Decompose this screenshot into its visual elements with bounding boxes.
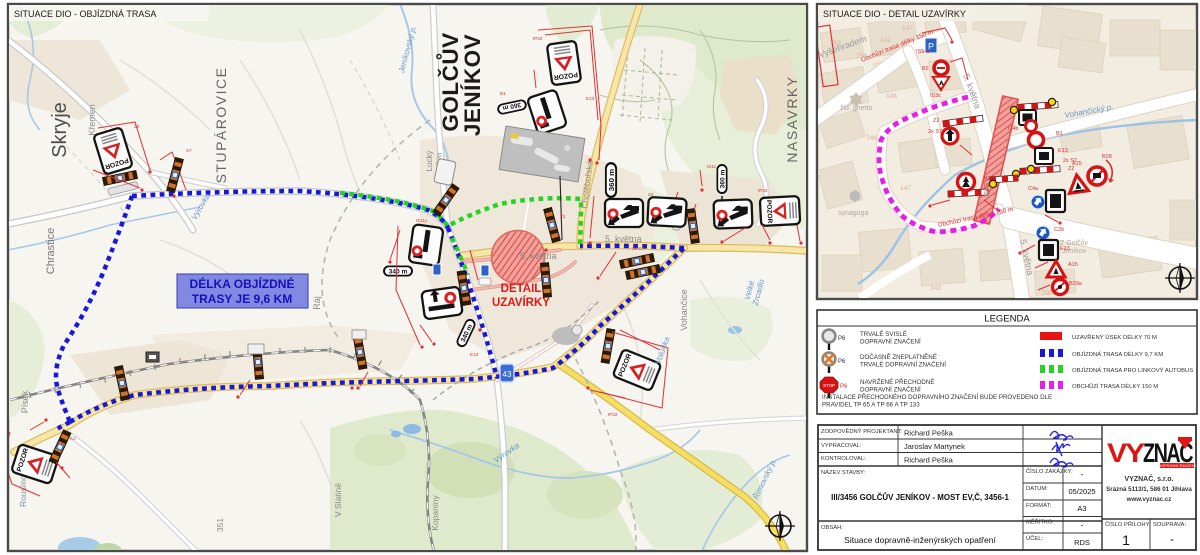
svg-text:UZAVÍRKY: UZAVÍRKY — [492, 296, 550, 309]
svg-text:UZAVŘENÝ ÚSEK DÉLKY 70 M: UZAVŘENÝ ÚSEK DÉLKY 70 M — [1072, 333, 1157, 341]
svg-text:ČÍSLO ZAKÁZKY:: ČÍSLO ZAKÁZKY: — [1026, 468, 1073, 475]
svg-text:Richard Peška: Richard Peška — [904, 456, 954, 465]
svg-text:5. května: 5. května — [605, 234, 642, 244]
svg-text:GOLČŮV: GOLČŮV — [435, 32, 463, 131]
svg-text:Z2: Z2 — [134, 124, 140, 129]
svg-text:TRASY JE 9,6 KM: TRASY JE 9,6 KM — [192, 292, 292, 306]
svg-text:B1: B1 — [1056, 131, 1063, 137]
svg-text:IS5-d: IS5-d — [916, 49, 929, 55]
svg-text:Vohančice: Vohančice — [679, 289, 689, 331]
svg-text:C4a: C4a — [1028, 186, 1039, 192]
svg-text:STUPÁROVICE: STUPÁROVICE — [213, 67, 229, 184]
svg-text:MĚŘÍTKO:: MĚŘÍTKO: — [1026, 518, 1054, 526]
svg-text:2x S7: 2x S7 — [928, 129, 942, 135]
svg-text:KONTROLOVAL:: KONTROLOVAL: — [821, 456, 866, 462]
svg-text:V Slatině: V Slatině — [333, 483, 343, 517]
svg-text:B20a: B20a — [1069, 281, 1083, 287]
svg-text:NAVRŽENÉ PŘECHODNÉ: NAVRŽENÉ PŘECHODNÉ — [860, 378, 935, 386]
svg-text:VYZNAČ, s.r.o.: VYZNAČ, s.r.o. — [1124, 474, 1173, 483]
svg-text:TRVALÉ DOPRAVNÍ ZNAČENÍ: TRVALÉ DOPRAVNÍ ZNAČENÍ — [860, 362, 946, 369]
svg-text:IS11c: IS11c — [416, 218, 428, 223]
svg-text:IS3c: IS3c — [930, 93, 941, 99]
svg-text:OBJÍZDNÁ TRASA DÉLKY 9,7 KM: OBJÍZDNÁ TRASA DÉLKY 9,7 KM — [1072, 351, 1163, 358]
svg-text:IS11: IS11 — [707, 164, 717, 169]
svg-text:VY: VY — [1107, 438, 1145, 468]
svg-text:B28: B28 — [1102, 154, 1112, 160]
svg-text:Skryje: Skryje — [49, 102, 71, 158]
svg-text:Situace dopravně-inženýrských: Situace dopravně-inženýrských opatření — [844, 535, 996, 545]
svg-text:Richard Peška: Richard Peška — [904, 429, 954, 438]
svg-text:Chrastice: Chrastice — [45, 228, 57, 274]
svg-text:Z2: Z2 — [560, 214, 566, 219]
svg-text:DETAIL: DETAIL — [501, 283, 542, 295]
svg-text:DOPRAVNÍ ZNAČENÍ: DOPRAVNÍ ZNAČENÍ — [860, 387, 921, 394]
svg-text:VYPRACOVAL:: VYPRACOVAL: — [821, 443, 862, 449]
svg-text:Kopaniny: Kopaniny — [430, 495, 440, 531]
svg-text:A15: A15 — [1072, 161, 1082, 167]
svg-text:DOPRAVNÍ ZNAČENÍ: DOPRAVNÍ ZNAČENÍ — [860, 339, 921, 346]
svg-text:IP22: IP22 — [533, 36, 543, 41]
svg-text:351: 351 — [215, 518, 225, 532]
svg-text:IJ4b: IJ4b — [1008, 126, 1018, 132]
svg-text:PRAVIDEL TP 65 A TP 66 A TP 13: PRAVIDEL TP 65 A TP 66 A TP 133 — [822, 402, 920, 409]
svg-text:SOUPRAVA:: SOUPRAVA: — [1153, 522, 1186, 528]
svg-text:DÉLKA OBJÍZDNÉ: DÉLKA OBJÍZDNÉ — [190, 276, 295, 291]
svg-text:Srázná 5113/1, 586 01 Jihlava: Srázná 5113/1, 586 01 Jihlava — [1106, 486, 1192, 493]
svg-text:Jaroslav Martynek: Jaroslav Martynek — [904, 442, 965, 451]
svg-text:147: 147 — [900, 185, 911, 192]
svg-text:TRVALÉ SVISLÉ: TRVALÉ SVISLÉ — [860, 331, 907, 338]
svg-text:NASAVRKY: NASAVRKY — [784, 75, 800, 162]
svg-text:148: 148 — [886, 93, 897, 100]
svg-text:-: - — [1170, 532, 1174, 546]
svg-text:DOPRAVNÍ ZNAČENÍ: DOPRAVNÍ ZNAČENÍ — [1158, 463, 1196, 468]
svg-text:S7: S7 — [186, 148, 192, 153]
svg-text:P6: P6 — [838, 359, 846, 365]
svg-text:243: 243 — [930, 285, 941, 292]
svg-text:Písek: Písek — [20, 390, 30, 413]
svg-text:P6: P6 — [838, 336, 846, 342]
svg-text:RDS: RDS — [1074, 538, 1090, 547]
svg-text:IP22: IP22 — [608, 412, 618, 417]
svg-text:758: 758 — [856, 53, 867, 60]
svg-text:OBJÍZDNÁ TRASA PRO LINKOVÝ AUT: OBJÍZDNÁ TRASA PRO LINKOVÝ AUTOBUS — [1072, 367, 1193, 374]
svg-text:ČÍSLO PŘÍLOHY:: ČÍSLO PŘÍLOHY: — [1105, 520, 1151, 528]
svg-text:Ráj: Ráj — [312, 296, 322, 310]
svg-text:INSTALACE PŘECHODNÉHO DOPRAVNÍ: INSTALACE PŘECHODNÉHO DOPRAVNÍHO ZNAČENÍ… — [822, 393, 1052, 401]
svg-text:JENÍKOV: JENÍKOV — [460, 34, 485, 136]
svg-text:E13: E13 — [1060, 246, 1070, 252]
svg-text:LEGENDA: LEGENDA — [984, 314, 1030, 325]
svg-text:P6: P6 — [840, 384, 848, 390]
svg-text:Lucký: Lucký — [425, 151, 434, 172]
svg-text:ÚČEL:: ÚČEL: — [1026, 535, 1043, 542]
svg-text:-: - — [1081, 521, 1084, 530]
svg-text:142: 142 — [880, 37, 891, 44]
svg-text:ZODPOVĚDNÝ PROJEKTANT:: ZODPOVĚDNÝ PROJEKTANT: — [821, 427, 902, 435]
svg-text:B1: B1 — [500, 91, 506, 96]
svg-text:B2: B2 — [922, 66, 929, 72]
svg-text:www.vyznac.cz: www.vyznac.cz — [1126, 496, 1172, 503]
svg-text:OBSAH:: OBSAH: — [821, 525, 843, 531]
svg-text:synagoga: synagoga — [838, 210, 868, 217]
svg-text:SITUACE DIO - DETAIL UZAVÍRKY: SITUACE DIO - DETAIL UZAVÍRKY — [823, 9, 966, 19]
svg-text:2x S7: 2x S7 — [632, 246, 644, 251]
svg-text:43: 43 — [503, 370, 512, 379]
svg-text:DOČASNĚ ZNEPLATNĚNÉ: DOČASNĚ ZNEPLATNĚNÉ — [860, 353, 937, 361]
svg-text:780: 780 — [1042, 290, 1053, 297]
svg-text:746: 746 — [866, 135, 877, 142]
svg-text:5. května: 5. května — [520, 251, 557, 261]
svg-text:STOP: STOP — [823, 383, 835, 388]
svg-text:OBCHŮZÍ TRASA DÉLKY 150 M: OBCHŮZÍ TRASA DÉLKY 150 M — [1072, 383, 1158, 390]
svg-text:SITUACE DIO - OBJÍZDNÁ TRASA: SITUACE DIO - OBJÍZDNÁ TRASA — [14, 9, 156, 19]
svg-text:147: 147 — [902, 25, 913, 32]
svg-text:III/3456 GOLČŮV JENÍKOV - MOST: III/3456 GOLČŮV JENÍKOV - MOST EV,Č, 345… — [831, 492, 1009, 502]
svg-text:E13: E13 — [1058, 148, 1068, 154]
svg-text:Křemen: Křemen — [87, 104, 97, 136]
svg-text:05/2025: 05/2025 — [1068, 487, 1095, 496]
svg-text:A15: A15 — [1068, 262, 1078, 268]
svg-text:E13: E13 — [470, 352, 479, 357]
svg-text:Z2: Z2 — [648, 192, 654, 197]
svg-text:1: 1 — [1122, 532, 1130, 548]
svg-text:FORMÁT:: FORMÁT: — [1026, 502, 1052, 509]
svg-text:E13: E13 — [586, 96, 595, 101]
svg-text:Z2: Z2 — [933, 118, 939, 124]
svg-text:NÁZEV STAVBY:: NÁZEV STAVBY: — [821, 469, 866, 476]
svg-text:DATUM:: DATUM: — [1026, 486, 1048, 492]
svg-text:C2b: C2b — [1054, 227, 1064, 233]
svg-text:A3: A3 — [1077, 504, 1086, 513]
svg-text:IP22: IP22 — [758, 188, 768, 193]
svg-text:-: - — [1081, 470, 1084, 479]
svg-text:Z2: Z2 — [984, 190, 990, 196]
svg-text:K2: K2 — [70, 436, 76, 441]
